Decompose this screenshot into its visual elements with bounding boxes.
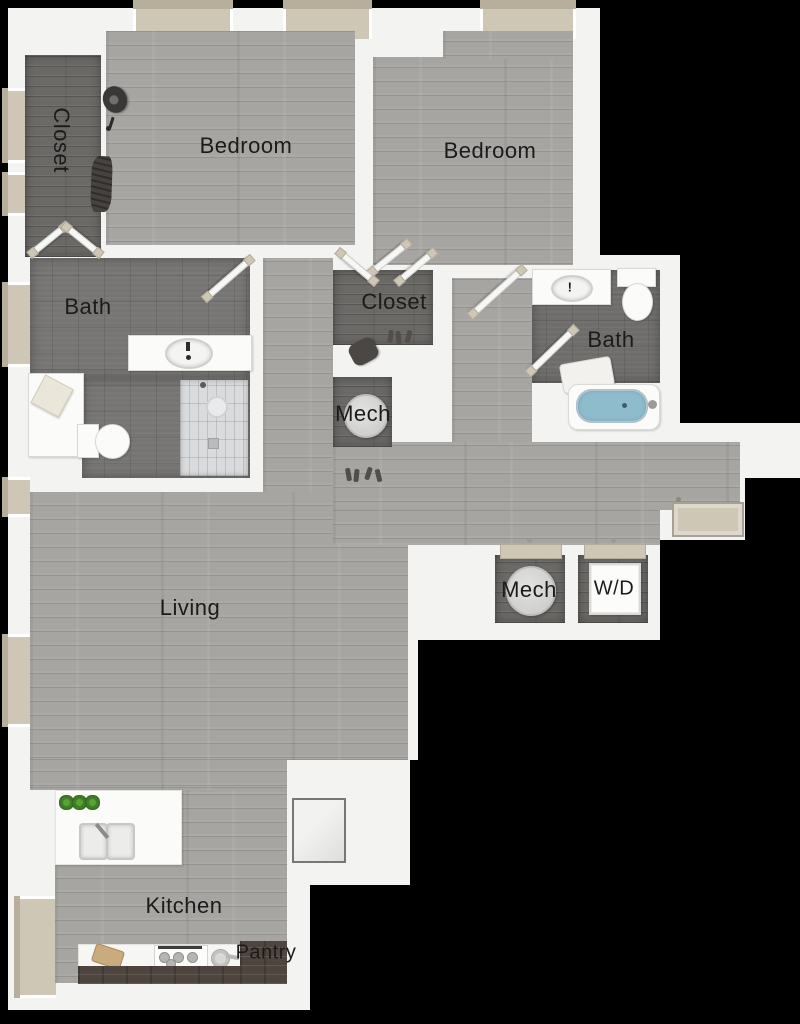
room-living-floor-lower [30,760,287,790]
kitchen-sink-basin [79,823,108,860]
bathtub-faucet [648,400,657,409]
room-closet-entry-label: Closet [48,107,74,172]
room-washer-dryer-label: W/D [594,578,634,601]
entry-door-knob [676,497,681,502]
room-pantry-label: Pantry [236,942,297,965]
potted-plant [85,795,100,810]
range-burner [187,952,198,963]
bathtub-water [576,389,648,423]
wd-closet-door [584,544,646,559]
room-bedroom-right-floor-nook [443,31,573,59]
shower-drain [208,438,219,449]
mech-closet-door [500,544,562,559]
kitchen-sink-basin [106,823,135,860]
walk-in-shower [180,380,248,476]
hanging-clothes [90,156,113,213]
hall-floor-bedroom2 [452,278,532,446]
shower-valve [200,382,206,388]
bath-second-faucet-mark: ! [568,280,573,295]
wd-closet-door-knob [611,538,616,543]
entry-door [672,502,744,537]
shower-head [206,396,228,418]
hook-icon-dot [106,126,111,131]
vestibule-door-panel [292,798,346,863]
floor-plan: ! Closet Bedroom Bedroom Bath Closet Me [0,0,800,1024]
balcony-door [14,896,56,998]
room-mech-hall-label: Mech [335,401,391,427]
range-control-strip [158,946,202,949]
room-kitchen-label: Kitchen [146,893,223,919]
room-living-label: Living [160,595,220,621]
room-closet-hall-label: Closet [361,289,426,315]
toilet-second-bowl [622,283,653,321]
mech-closet-door-knob [527,538,532,543]
hall-floor-center [263,258,333,492]
room-bedroom-left-label: Bedroom [200,133,293,159]
bath-main-faucet [186,342,190,351]
room-bath-second-label: Bath [587,327,634,353]
window-bay-left-4 [2,477,30,517]
toilet-main-bowl [95,424,130,459]
room-mech-laundry-label: Mech [501,577,557,603]
room-bath-main-label: Bath [64,294,111,320]
room-bedroom-right-label: Bedroom [444,138,537,164]
bathtub-drain [622,403,627,408]
bath-main-drain [186,355,191,360]
